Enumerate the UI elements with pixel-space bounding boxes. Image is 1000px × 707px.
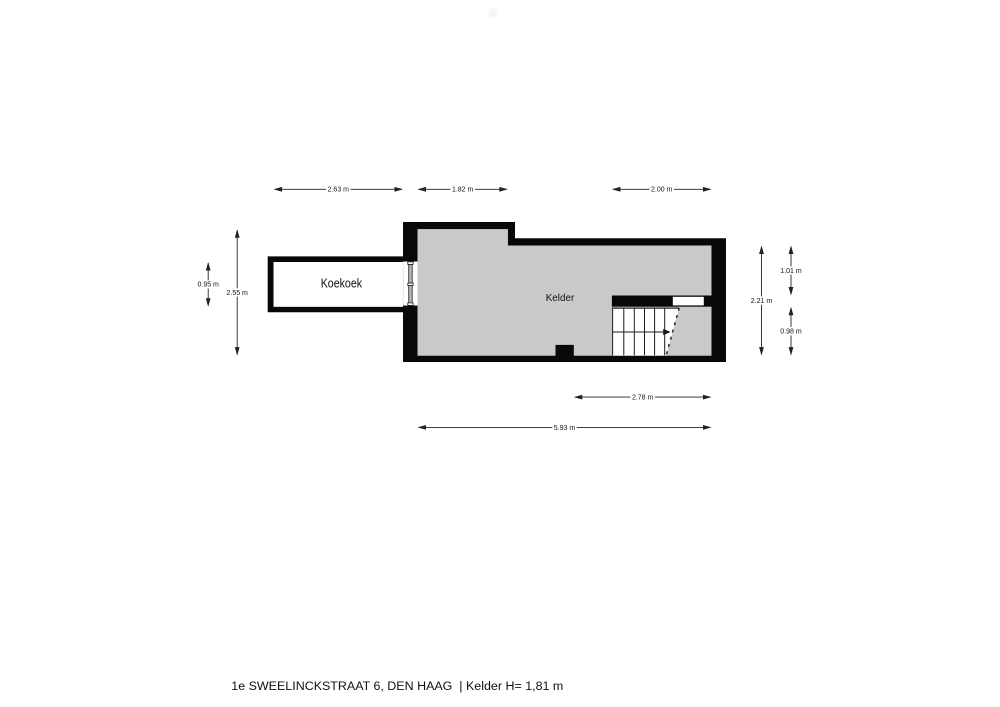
svg-text:2.78 m: 2.78 m — [632, 395, 654, 402]
svg-text:0.98 m: 0.98 m — [780, 328, 802, 335]
svg-text:Koekoek: Koekoek — [321, 276, 363, 291]
svg-text:2.63 m: 2.63 m — [328, 187, 350, 194]
svg-text:2.00 m: 2.00 m — [651, 187, 673, 194]
svg-text:2.21 m: 2.21 m — [751, 298, 773, 305]
svg-text:2.55 m: 2.55 m — [226, 290, 248, 297]
svg-text:1e SWEELINCKSTRAAT 6, DEN HAAG: 1e SWEELINCKSTRAAT 6, DEN HAAG | Kelder … — [231, 679, 563, 693]
svg-text:0.95 m: 0.95 m — [197, 282, 219, 289]
svg-text:1.82 m: 1.82 m — [452, 187, 474, 194]
svg-text:5.93 m: 5.93 m — [554, 425, 576, 432]
svg-text:Kelder: Kelder — [546, 292, 575, 304]
svg-text:1.01 m: 1.01 m — [780, 268, 802, 275]
